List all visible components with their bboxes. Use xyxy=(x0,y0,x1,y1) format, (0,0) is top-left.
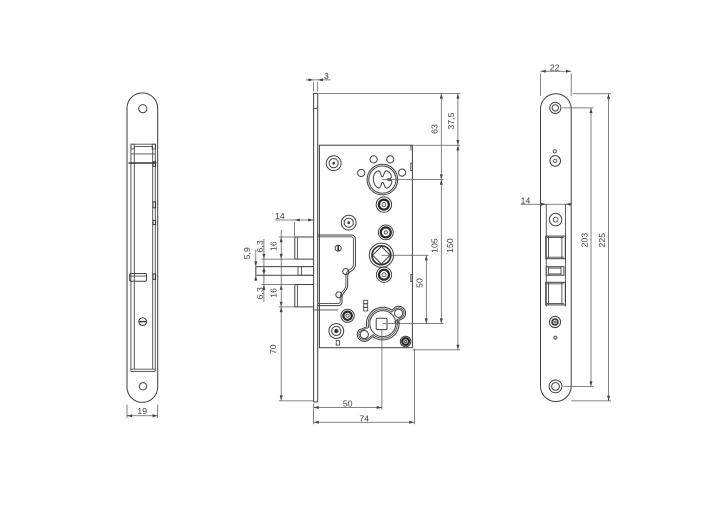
svg-text:6,3: 6,3 xyxy=(255,240,265,252)
svg-text:150: 150 xyxy=(445,238,455,253)
svg-text:203: 203 xyxy=(579,233,589,248)
svg-text:63: 63 xyxy=(430,124,440,134)
svg-text:3: 3 xyxy=(324,71,329,81)
svg-text:16: 16 xyxy=(268,288,278,298)
svg-text:50: 50 xyxy=(343,399,353,409)
svg-text:5,9: 5,9 xyxy=(242,247,252,259)
svg-text:70: 70 xyxy=(268,344,278,354)
svg-text:105: 105 xyxy=(429,238,439,253)
svg-text:74: 74 xyxy=(359,413,369,423)
svg-text:14: 14 xyxy=(521,195,531,205)
svg-text:50: 50 xyxy=(415,278,425,288)
svg-text:19: 19 xyxy=(137,406,147,416)
svg-text:14: 14 xyxy=(275,211,285,221)
svg-text:37,5: 37,5 xyxy=(446,112,456,129)
svg-text:22: 22 xyxy=(550,63,560,73)
svg-text:6,3: 6,3 xyxy=(255,287,265,299)
svg-text:16: 16 xyxy=(268,241,278,251)
svg-text:225: 225 xyxy=(597,233,607,248)
